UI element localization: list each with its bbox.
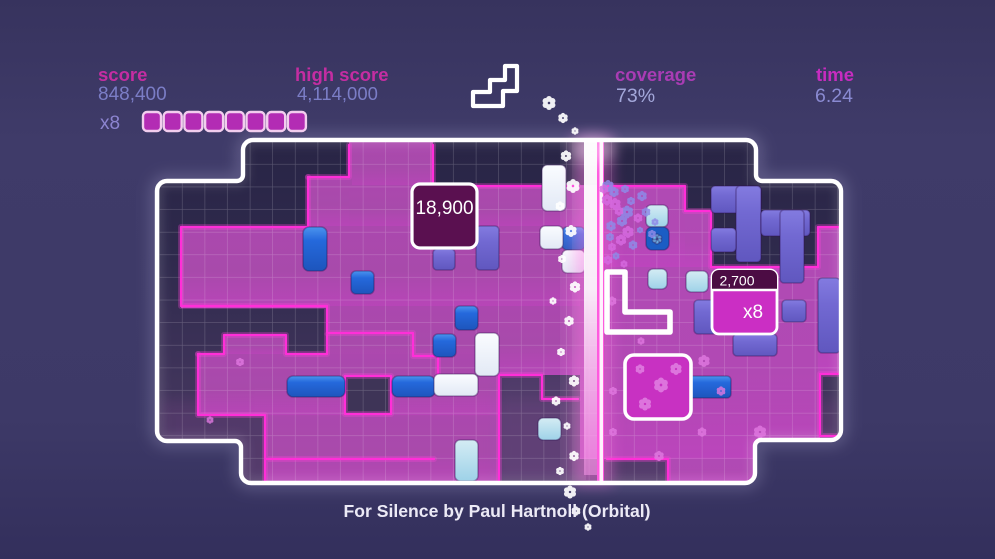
svg-text:For Silence by Paul Hartnoll (: For Silence by Paul Hartnoll (Orbital) [344,501,651,521]
svg-text:x8: x8 [743,302,763,323]
svg-text:848,400: 848,400 [98,84,167,105]
svg-text:x8: x8 [100,113,120,134]
svg-text:coverage: coverage [615,64,696,85]
svg-text:score: score [98,64,147,85]
svg-text:73%: 73% [616,85,655,107]
svg-text:2,700: 2,700 [719,273,754,289]
svg-text:high score: high score [295,64,389,85]
svg-text:time: time [816,64,854,85]
svg-text:6.24: 6.24 [815,85,853,107]
svg-text:4,114,000: 4,114,000 [297,83,378,104]
svg-text:18,900: 18,900 [415,198,473,219]
